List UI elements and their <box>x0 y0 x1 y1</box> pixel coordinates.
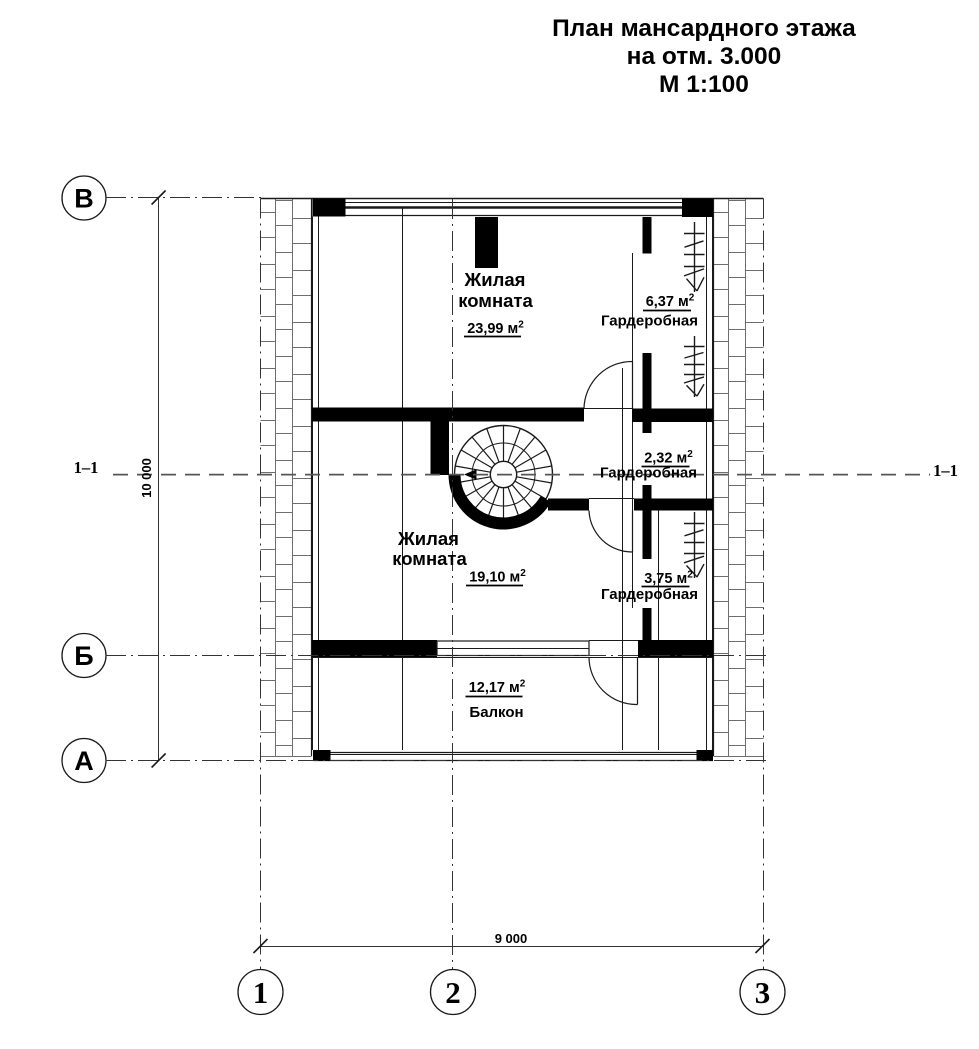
svg-text:комната: комната <box>458 290 533 311</box>
svg-text:1–1: 1–1 <box>933 461 958 480</box>
svg-text:6,37 м2: 6,37 м2 <box>646 293 695 311</box>
svg-text:Гардеробная: Гардеробная <box>601 313 698 330</box>
svg-text:2: 2 <box>445 975 461 1010</box>
svg-text:9 000: 9 000 <box>495 931 528 946</box>
svg-text:3: 3 <box>755 975 771 1010</box>
svg-text:В: В <box>74 184 94 214</box>
svg-text:10 000: 10 000 <box>139 458 154 498</box>
svg-text:1: 1 <box>253 975 269 1010</box>
svg-text:Жилая: Жилая <box>464 269 526 290</box>
svg-text:Б: Б <box>74 641 93 671</box>
svg-text:Балкон: Балкон <box>469 704 523 721</box>
svg-text:3,75 м2: 3,75 м2 <box>644 570 693 588</box>
svg-text:А: А <box>74 746 94 776</box>
svg-text:23,99 м2: 23,99 м2 <box>467 320 524 338</box>
svg-text:М 1:100: М 1:100 <box>659 71 749 98</box>
svg-text:12,17 м2: 12,17 м2 <box>469 679 526 697</box>
svg-text:на отм. 3.000: на отм. 3.000 <box>627 43 782 70</box>
svg-text:19,10 м2: 19,10 м2 <box>469 568 526 586</box>
svg-text:1–1: 1–1 <box>74 458 99 477</box>
svg-text:Гардеробная: Гардеробная <box>600 465 697 482</box>
svg-text:Гардеробная: Гардеробная <box>601 586 698 603</box>
svg-text:комната: комната <box>392 548 467 569</box>
svg-text:План мансардного этажа: План мансардного этажа <box>552 15 856 42</box>
svg-text:Жилая: Жилая <box>397 528 459 549</box>
